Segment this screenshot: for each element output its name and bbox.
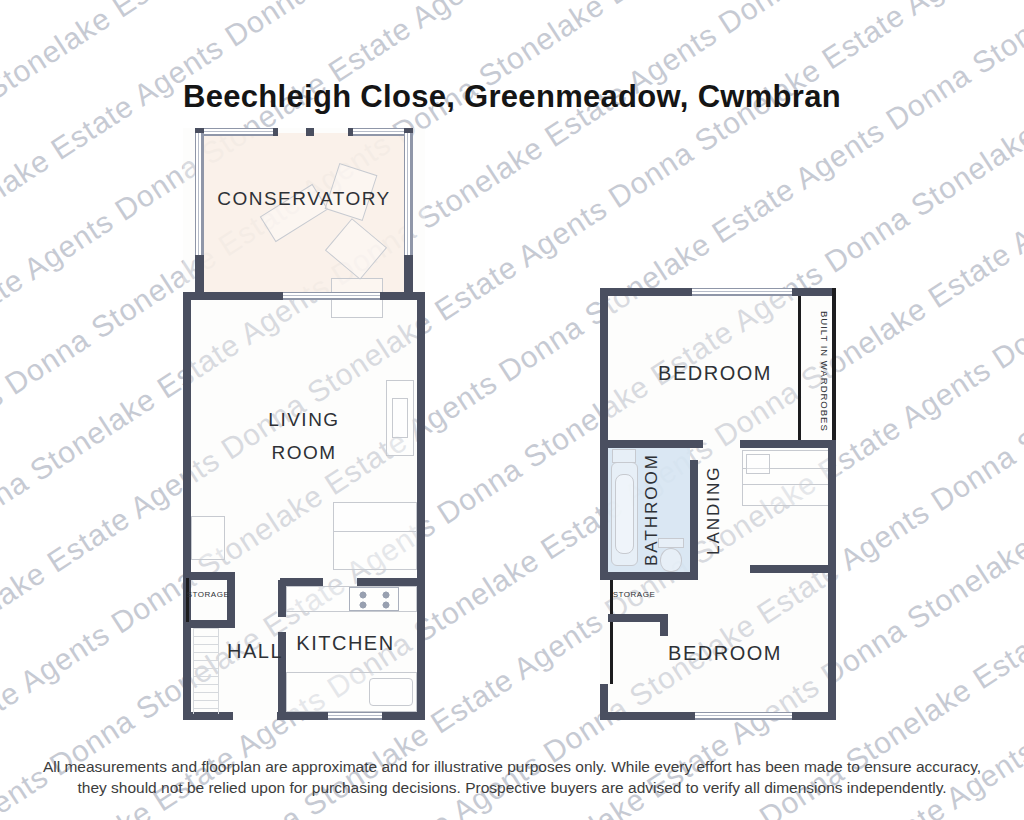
bed-sketch — [746, 454, 770, 474]
wall-segment — [183, 292, 191, 720]
furniture-sketch — [191, 516, 225, 560]
room-label-living-room: LIVING ROOM — [245, 403, 363, 469]
room-label-built-in-wardrobes: BUILT IN WARDROBES — [802, 298, 830, 444]
wall-segment — [600, 572, 698, 580]
watermark-text: Donna Stonelake Estate Agents Donna Ston… — [0, 0, 1024, 820]
watermark-text: Donna Stonelake Estate Agents Donna Ston… — [0, 0, 1024, 340]
window — [195, 128, 278, 136]
watermark-text: Donna Stonelake Estate Agents Donna Ston… — [0, 0, 1024, 820]
window — [323, 712, 387, 720]
thin-wall-line — [832, 288, 836, 464]
bed-sketch — [742, 484, 830, 485]
wall-segment — [417, 292, 425, 720]
wall-segment — [600, 440, 703, 448]
watermark-text: Donna Stonelake Estate Agents Donna Ston… — [0, 0, 1024, 820]
watermark-text: Donna Stonelake Estate Agents Donna Ston… — [0, 333, 1024, 820]
sofa-sketch — [333, 502, 417, 532]
room-label-conservatory: CONSERVATORY — [195, 188, 413, 210]
watermark-text: Donna Stonelake Estate Agents Donna Ston… — [0, 0, 1024, 820]
wall-segment — [278, 580, 286, 617]
thin-wall-line — [186, 578, 189, 622]
watermark-text: Donna Stonelake Estate Agents Donna Ston… — [0, 0, 1024, 817]
wall-segment — [797, 288, 836, 296]
wall-segment — [828, 440, 836, 720]
room-label-hall: HALL — [221, 640, 289, 663]
stairs-sketch — [193, 628, 219, 714]
watermark-text: Donna Stonelake Estate Agents Donna Ston… — [0, 0, 1024, 514]
watermark-text: Donna Stonelake Estate Agents Donna Ston… — [0, 261, 1024, 820]
wall-segment — [404, 260, 413, 296]
room-label-kitchen: KITCHEN — [283, 632, 408, 655]
wall-segment — [306, 128, 314, 136]
wall-segment — [387, 712, 425, 720]
wall-segment — [660, 614, 668, 636]
window — [690, 712, 797, 720]
wall-segment — [750, 565, 836, 573]
window — [278, 292, 385, 300]
fireplace-sketch — [392, 398, 408, 438]
wall-segment — [690, 460, 698, 580]
watermark-text: Donna Stonelake Estate Agents Donna Ston… — [0, 0, 1024, 820]
wall-segment — [608, 614, 668, 622]
ground-floor-plan: CONSERVATORY LIVING ROOM STORAGE HALL KI… — [183, 128, 425, 720]
first-floor-plan: BUILT IN WARDROBES BEDROOM BATHROOM LAND… — [600, 288, 840, 720]
wall-segment — [183, 620, 235, 628]
wall-segment — [280, 578, 323, 586]
sink-sketch — [369, 678, 413, 706]
sink-sketch — [612, 449, 636, 463]
room-label-storage-first: STORAGE — [608, 590, 660, 599]
watermark-layer: Donna Stonelake Estate Agents Donna Ston… — [0, 0, 1024, 820]
watermark-text: Donna Stonelake Estate Agents Donna Ston… — [0, 0, 1024, 820]
wall-segment — [600, 288, 608, 580]
disclaimer-text: All measurements and floorplan are appro… — [28, 756, 996, 799]
room-label-landing: LANDING — [704, 448, 730, 572]
wall-segment — [195, 260, 204, 296]
wall-segment — [600, 288, 687, 296]
wall-segment — [357, 578, 417, 586]
watermark-text: Donna Stonelake Estate Agents Donna Ston… — [0, 44, 1024, 820]
bath-sketch — [615, 474, 634, 554]
wall-segment — [797, 712, 836, 720]
page-title: Beechleigh Close, Greenmeadow, Cwmbran — [0, 79, 1024, 115]
room-label-bedroom-back: BEDROOM — [645, 642, 805, 665]
room-label-bedroom-front: BEDROOM — [635, 362, 795, 385]
room-label-bathroom: BATHROOM — [642, 448, 668, 572]
wall-segment — [183, 292, 278, 300]
wall-segment — [600, 712, 690, 720]
thin-wall-line — [798, 296, 801, 442]
window — [687, 288, 797, 296]
room-label-storage: STORAGE — [186, 590, 230, 599]
watermark-text: Donna Stonelake Estate Agents Donna Ston… — [0, 188, 1024, 820]
hob-sketch — [349, 587, 399, 611]
watermark-text: Donna Stonelake Estate Agents Donna Ston… — [0, 116, 1024, 820]
